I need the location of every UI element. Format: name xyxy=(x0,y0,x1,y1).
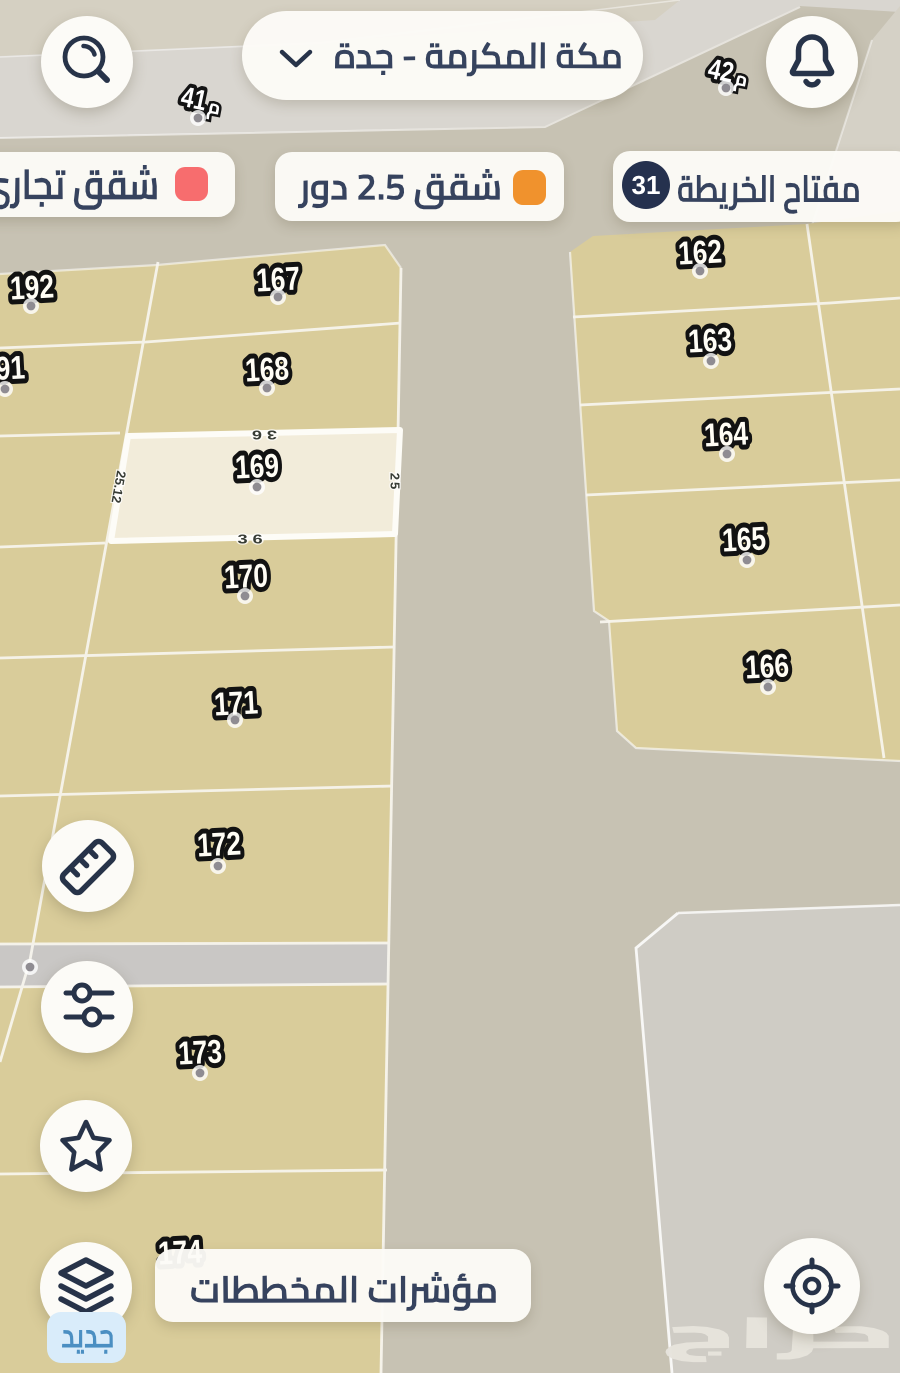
svg-text:36: 36 xyxy=(247,427,277,441)
svg-text:25: 25 xyxy=(387,473,402,491)
svg-text:36: 36 xyxy=(237,533,267,547)
